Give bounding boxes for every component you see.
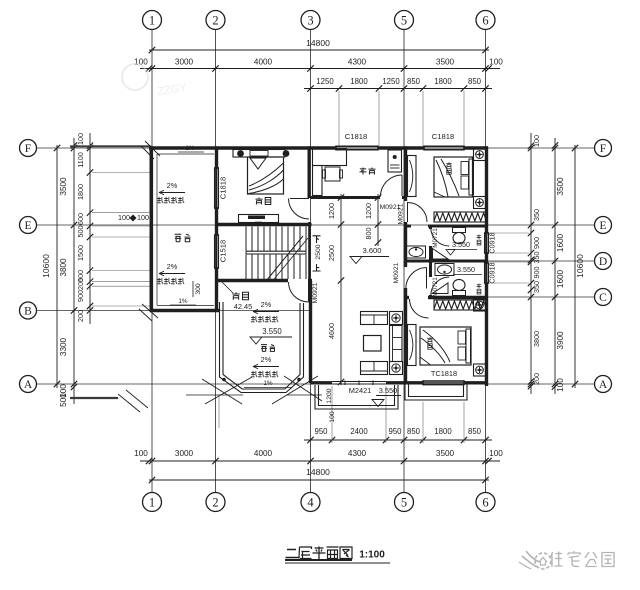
svg-text:M0921: M0921	[393, 262, 400, 283]
svg-text:3.550: 3.550	[457, 265, 475, 274]
svg-text:3: 3	[307, 13, 313, 27]
svg-text:100: 100	[134, 449, 148, 458]
svg-text:5: 5	[401, 13, 407, 27]
svg-text:4000: 4000	[254, 449, 273, 458]
svg-text:600: 600	[76, 213, 85, 225]
svg-text:1500: 1500	[76, 245, 85, 261]
svg-text:TC1818: TC1818	[431, 369, 457, 378]
svg-text:900: 900	[76, 290, 85, 302]
svg-text:100: 100	[118, 213, 130, 222]
svg-text:1800: 1800	[76, 184, 85, 200]
svg-text:950: 950	[388, 427, 402, 436]
svg-text:350: 350	[532, 209, 541, 221]
svg-text:C1818: C1818	[432, 132, 454, 141]
svg-text:100: 100	[137, 213, 149, 222]
svg-text:3.550: 3.550	[262, 327, 282, 336]
svg-text:4: 4	[307, 495, 314, 509]
svg-text:10600: 10600	[575, 254, 585, 278]
svg-text:500: 500	[59, 393, 68, 407]
svg-text:6: 6	[482, 13, 488, 27]
svg-text:850: 850	[468, 427, 482, 436]
svg-text:A: A	[24, 379, 33, 391]
svg-text:M0921: M0921	[398, 203, 405, 224]
svg-text:42.45: 42.45	[234, 302, 253, 311]
svg-text:2%: 2%	[167, 181, 178, 190]
svg-text:4600: 4600	[327, 323, 336, 339]
svg-text:850: 850	[407, 77, 421, 86]
svg-text:2400: 2400	[350, 427, 368, 436]
svg-text:1600: 1600	[556, 269, 565, 288]
svg-text:E: E	[599, 220, 606, 232]
svg-text:350: 350	[532, 281, 541, 293]
svg-text:6: 6	[482, 495, 488, 509]
svg-text:1200: 1200	[326, 388, 333, 403]
svg-text:F: F	[25, 143, 31, 155]
svg-text:4300: 4300	[348, 58, 367, 67]
svg-text:C1518: C1518	[219, 240, 228, 262]
svg-text:3000: 3000	[175, 449, 194, 458]
svg-text:2: 2	[212, 13, 218, 27]
svg-text:14800: 14800	[306, 467, 330, 477]
svg-text:3500: 3500	[59, 177, 68, 196]
svg-text:4000: 4000	[254, 58, 273, 67]
svg-text:3500: 3500	[556, 177, 565, 196]
svg-text:F: F	[600, 143, 606, 155]
svg-text:1%: 1%	[263, 380, 273, 387]
svg-text:3800: 3800	[532, 331, 541, 347]
svg-text:C: C	[599, 292, 607, 304]
svg-text:200: 200	[532, 373, 541, 385]
svg-text:300: 300	[195, 283, 202, 295]
svg-text:2500: 2500	[315, 244, 322, 259]
svg-text:1%: 1%	[178, 298, 188, 305]
svg-text:1800: 1800	[434, 77, 452, 86]
svg-text:200: 200	[76, 278, 85, 290]
svg-text:2500: 2500	[327, 245, 336, 261]
svg-text:A: A	[599, 379, 608, 391]
svg-text:5: 5	[401, 495, 407, 509]
svg-text:3.600: 3.600	[362, 246, 381, 255]
svg-text:3500: 3500	[436, 449, 455, 458]
svg-text:1800: 1800	[434, 427, 452, 436]
svg-text:C1818: C1818	[345, 132, 367, 141]
svg-text:1%: 1%	[185, 145, 195, 152]
svg-text:1:100: 1:100	[359, 550, 385, 561]
svg-text:2%: 2%	[167, 262, 178, 271]
svg-text:1: 1	[149, 495, 155, 509]
svg-text:10600: 10600	[41, 254, 51, 278]
svg-text:14800: 14800	[306, 38, 330, 48]
svg-text:1200: 1200	[364, 203, 373, 219]
svg-text:100: 100	[489, 449, 503, 458]
svg-text:500: 500	[76, 226, 85, 238]
svg-text:100: 100	[532, 135, 541, 147]
svg-text:E: E	[24, 220, 31, 232]
svg-text:2%: 2%	[261, 355, 272, 364]
svg-text:1250: 1250	[382, 77, 400, 86]
svg-text:C0918: C0918	[488, 232, 497, 253]
svg-text:850: 850	[407, 427, 421, 436]
svg-text:850: 850	[468, 77, 482, 86]
svg-text:900: 900	[532, 237, 541, 249]
svg-text:C1818: C1818	[219, 177, 228, 199]
svg-text:3500: 3500	[436, 58, 455, 67]
svg-text:1600: 1600	[556, 233, 565, 252]
svg-text:M2421: M2421	[349, 386, 372, 395]
svg-text:1: 1	[149, 13, 155, 27]
svg-text:4300: 4300	[348, 449, 367, 458]
svg-text:3000: 3000	[175, 58, 194, 67]
svg-text:3300: 3300	[59, 337, 68, 356]
svg-text:3800: 3800	[59, 258, 68, 277]
svg-text:1250: 1250	[316, 77, 334, 86]
svg-text:3.550: 3.550	[452, 240, 470, 249]
svg-text:950: 950	[314, 427, 328, 436]
svg-text:100: 100	[76, 133, 85, 145]
svg-text:800: 800	[364, 228, 373, 240]
svg-text:1100: 1100	[76, 152, 85, 167]
svg-text:1200: 1200	[327, 203, 336, 219]
svg-text:1800: 1800	[350, 77, 368, 86]
svg-text:D: D	[599, 256, 607, 268]
svg-text:100: 100	[329, 411, 336, 423]
svg-text:M0721: M0721	[432, 228, 439, 248]
svg-text:C0918: C0918	[488, 262, 497, 283]
svg-text:3900: 3900	[556, 331, 565, 350]
svg-text:900: 900	[532, 267, 541, 279]
svg-text:2%: 2%	[261, 300, 272, 309]
svg-text:2: 2	[212, 495, 218, 509]
svg-text:100: 100	[489, 58, 503, 67]
svg-text:B: B	[24, 306, 32, 318]
svg-text:100: 100	[556, 378, 565, 392]
svg-text:M0921: M0921	[312, 282, 319, 303]
svg-text:200: 200	[76, 310, 85, 322]
svg-text:350: 350	[532, 252, 541, 264]
